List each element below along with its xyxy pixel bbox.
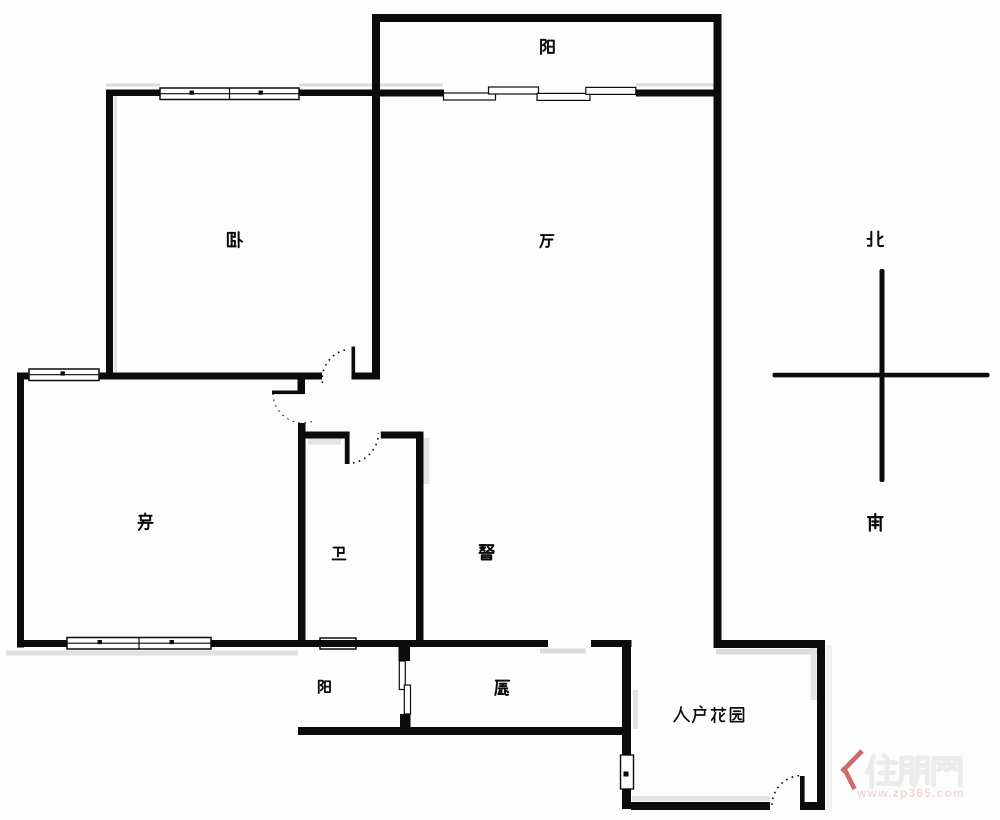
- svg-text:www.zp365.com: www.zp365.com: [856, 786, 965, 800]
